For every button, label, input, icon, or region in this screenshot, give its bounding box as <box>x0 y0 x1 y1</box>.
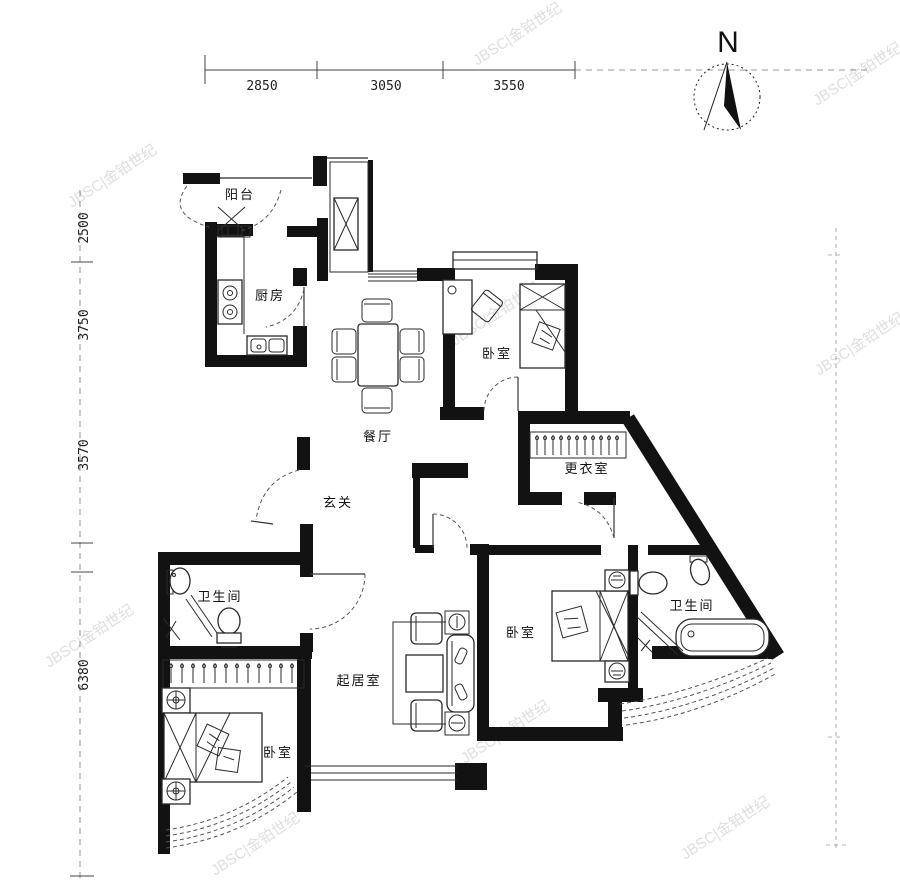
room-label-kitchen: 厨房 <box>255 288 285 303</box>
room-label-dressing: 更衣室 <box>564 461 609 476</box>
nightstand-icon <box>605 661 629 682</box>
wardrobe-icon <box>334 198 358 250</box>
dimension-label-top-2: 3050 <box>370 79 401 94</box>
dimension-line-right <box>826 228 846 848</box>
dimension-label-top-3: 3550 <box>493 79 524 94</box>
side-table-lamp-icon <box>445 712 469 735</box>
room-label-bedroom-sw: 卧室 <box>263 745 293 760</box>
bathtub-icon <box>676 619 769 656</box>
room-label-living: 起居室 <box>336 673 381 688</box>
dimension-label-left-3: 3570 <box>77 439 92 470</box>
watermark-text: JBSC|金铂世纪 <box>65 141 160 211</box>
watermark-text: JBSC|金铂世纪 <box>470 0 565 69</box>
bath-w-fixtures <box>163 568 241 647</box>
side-table-lamp-icon <box>445 611 469 634</box>
window-living-bottom <box>305 766 457 780</box>
watermark-text: JBSC|金铂世纪 <box>812 309 900 379</box>
dimension-line-left: 2500 3750 3570 6380 <box>70 190 94 878</box>
dimension-label-top-1: 2850 <box>246 79 277 94</box>
floor-plan-drawing: JBSC|金铂世纪 JBSC|金铂世纪 JBSC|金铂世纪 JBSC|金铂世纪 … <box>0 0 900 894</box>
door-arc-entry <box>256 470 299 520</box>
nightstand-icon <box>162 688 190 713</box>
window-dining-top <box>368 271 417 281</box>
window-bedroom-ne <box>453 252 537 269</box>
room-label-bath-e: 卫生间 <box>669 598 714 613</box>
toilet-icon <box>217 608 241 647</box>
door-arc-bedroom-ne <box>484 377 518 411</box>
watermark-text: JBSC|金铂世纪 <box>810 39 900 109</box>
nightstand-icon <box>162 779 190 804</box>
bedroom-e-furniture <box>552 570 629 682</box>
room-label-bedroom-ne: 卧室 <box>482 346 512 361</box>
door-arc-balcony-left <box>180 186 209 227</box>
room-label-balcony: 阳台 <box>225 187 255 202</box>
door-arc-dressing <box>576 502 614 538</box>
nightstand-icon <box>605 570 629 591</box>
room-label-bath-w: 卫生间 <box>197 589 242 604</box>
bay-window-se <box>620 658 777 725</box>
stove-icon <box>218 280 242 324</box>
room-label-dining: 餐厅 <box>363 429 393 444</box>
living-room-furniture <box>393 611 474 735</box>
thin-walls <box>220 158 368 272</box>
hanger-rack-icon <box>530 432 626 458</box>
bedroom-sw-furniture <box>162 660 304 804</box>
bed-icon <box>552 591 628 661</box>
dimension-line-top: 2850 3050 3550 <box>205 55 870 94</box>
floor-plan-page: JBSC|金铂世纪 JBSC|金铂世纪 JBSC|金铂世纪 JBSC|金铂世纪 … <box>0 0 900 894</box>
north-arrow: N <box>694 26 760 130</box>
coffee-table-icon <box>406 655 443 692</box>
bed-icon <box>164 713 262 782</box>
sofa-icon <box>447 635 474 712</box>
armchair-icon <box>411 700 442 731</box>
closet-hanger-icon <box>163 660 304 688</box>
armchair-icon <box>411 613 442 644</box>
north-label: N <box>717 26 739 59</box>
room-label-entry: 玄关 <box>323 495 353 510</box>
washbasin-icon <box>167 568 190 594</box>
dimension-label-left-1: 2500 <box>77 212 92 243</box>
dimension-label-left-2: 3750 <box>77 309 92 340</box>
compass-needle-icon <box>724 62 741 130</box>
door-arc-bedroom-e <box>433 514 467 548</box>
door-arc-bath-w <box>310 574 365 629</box>
dining-table-icon <box>332 299 424 413</box>
desk-icon <box>443 280 472 334</box>
kitchen-sink-icon <box>247 336 287 355</box>
washbasin-icon <box>687 556 712 587</box>
toilet-icon <box>630 571 667 595</box>
dimension-label-left-4: 6380 <box>77 659 92 690</box>
bed-icon <box>520 284 565 368</box>
room-label-bedroom-e: 卧室 <box>506 625 536 640</box>
watermark-text: JBSC|金铂世纪 <box>678 793 773 863</box>
